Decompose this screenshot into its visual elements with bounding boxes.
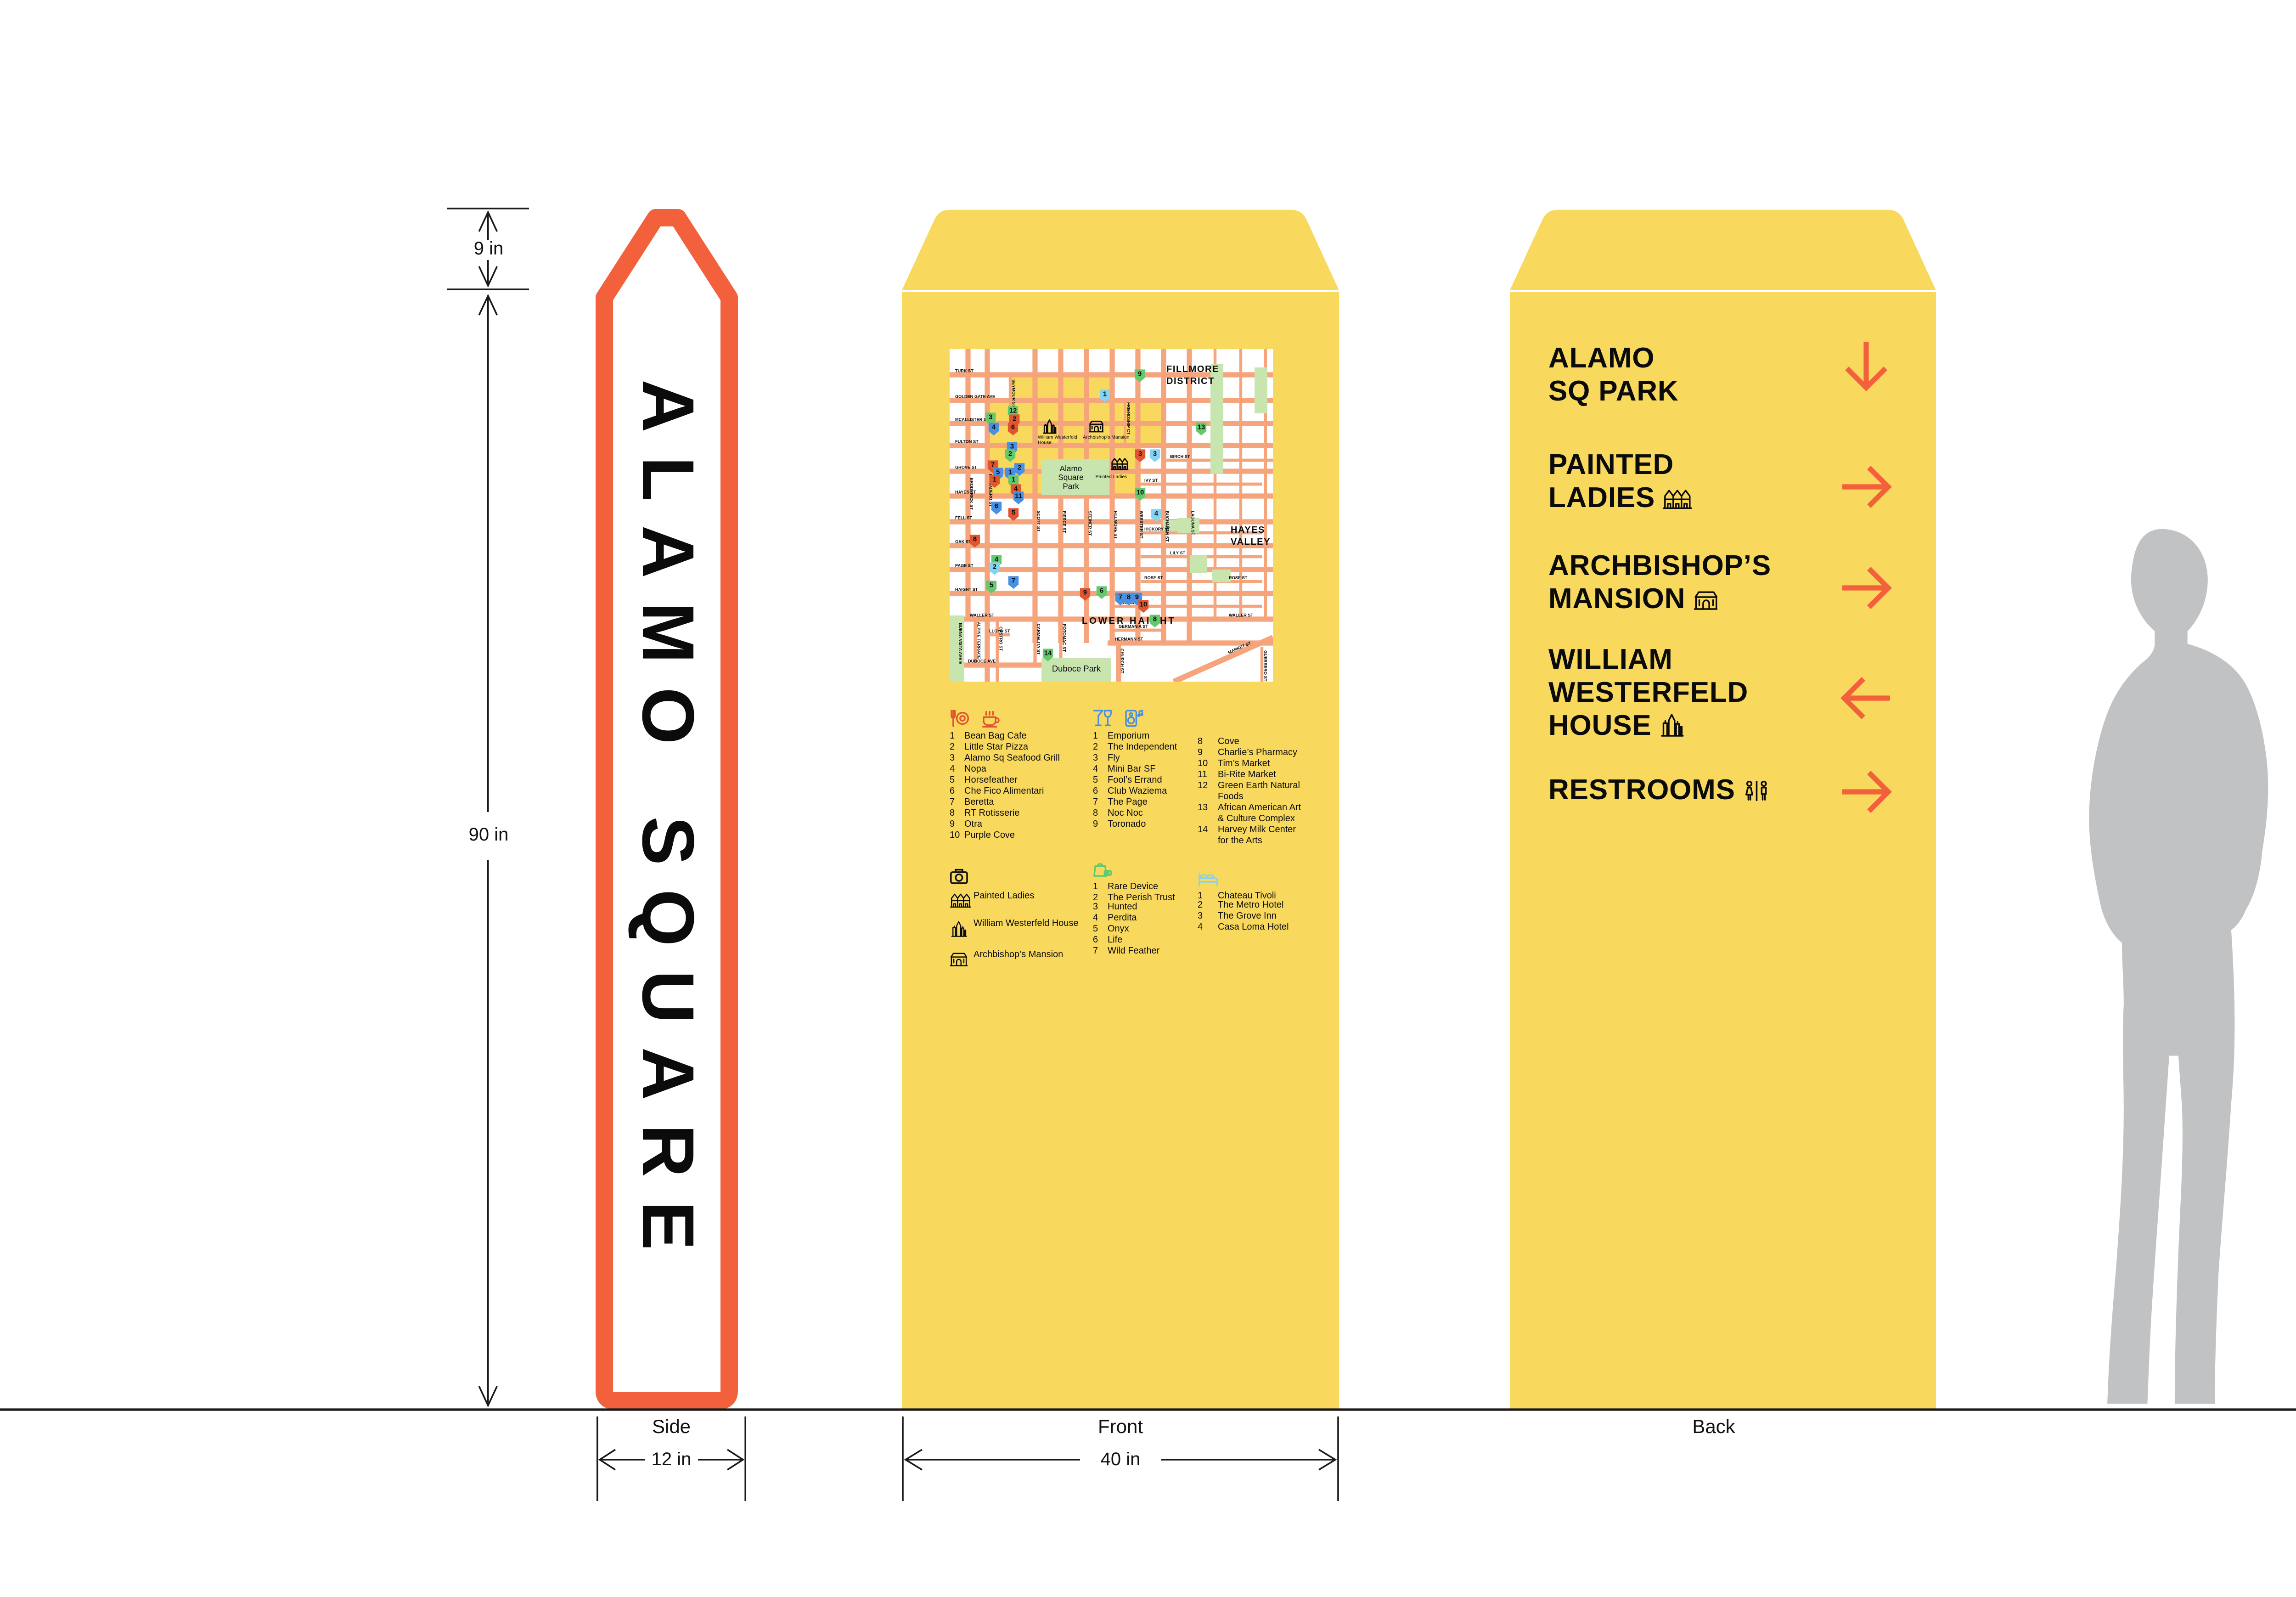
arrow-down-icon	[1837, 339, 1896, 394]
view-label-back: Back	[1692, 1416, 1735, 1439]
svg-text:ROSE ST: ROSE ST	[1144, 576, 1163, 581]
dim-40in: 40 in	[1095, 1450, 1146, 1470]
svg-text:SCOTT ST: SCOTT ST	[1036, 511, 1041, 532]
front-map: AlamoSquareParkDuboce ParkTURK STGOLDEN …	[950, 350, 1273, 682]
svg-text:8: 8	[973, 536, 977, 543]
svg-text:LILY ST: LILY ST	[1170, 551, 1186, 556]
svg-text:CARMELITA ST: CARMELITA ST	[1036, 624, 1041, 655]
back-panel-body: ALAMOSQ PARK PAINTEDLADIES ARCHBISHOP’SM…	[1510, 293, 1936, 1410]
svg-text:5: 5	[1012, 509, 1015, 517]
svg-text:FILLMORE: FILLMORE	[1166, 365, 1219, 375]
svg-text:FILLMORE ST: FILLMORE ST	[1113, 511, 1118, 540]
view-label-front: Front	[1098, 1416, 1143, 1439]
legend-sight: Painted Ladies	[950, 893, 1104, 913]
restaurant-icon	[950, 710, 971, 728]
legend-item: 10Purple Cove	[950, 832, 1104, 843]
svg-text:8: 8	[1153, 616, 1157, 623]
legend-item: 14Harvey Milk Center for the Arts	[1198, 826, 1302, 848]
svg-text:PIERCE ST: PIERCE ST	[1062, 511, 1066, 534]
svg-text:2: 2	[1018, 464, 1021, 472]
svg-text:Archbishop’s Mansion: Archbishop’s Mansion	[1083, 435, 1130, 440]
restrooms-icon	[1743, 781, 1770, 801]
svg-text:FRIENDSHIP CT: FRIENDSHIP CT	[1126, 403, 1131, 435]
svg-text:5: 5	[996, 469, 1000, 476]
westerfeld-icon	[950, 921, 968, 938]
svg-text:9: 9	[1083, 589, 1087, 597]
legend-sight: Archbishop’s Mansion	[950, 951, 1104, 971]
svg-text:POTOMAC ST: POTOMAC ST	[1062, 624, 1066, 652]
svg-text:Duboce Park: Duboce Park	[1052, 664, 1101, 674]
cocktail-icon	[1093, 710, 1113, 728]
svg-text:11: 11	[1015, 493, 1022, 500]
legend-category-icons	[1198, 866, 1302, 886]
legend-item: 12Green Earth Natural Foods	[1198, 783, 1302, 804]
svg-text:10: 10	[1137, 489, 1144, 497]
svg-text:6: 6	[1100, 587, 1103, 595]
svg-text:WALLER ST: WALLER ST	[970, 613, 994, 618]
back-directory-entry: PAINTEDLADIES	[1548, 451, 1693, 517]
arrow-right-icon	[1839, 559, 1894, 618]
person-silhouette	[2048, 525, 2290, 1415]
svg-text:House: House	[1038, 440, 1052, 446]
camera-icon	[950, 866, 969, 885]
svg-text:IVY ST: IVY ST	[1144, 479, 1158, 483]
svg-text:LOWER HAIGHT: LOWER HAIGHT	[1082, 616, 1176, 626]
svg-text:OAK ST: OAK ST	[955, 540, 971, 544]
mansion-icon	[1693, 590, 1718, 610]
svg-text:STEINER ST: STEINER ST	[1087, 511, 1092, 536]
svg-text:2: 2	[993, 564, 996, 571]
svg-text:BIRCH ST: BIRCH ST	[1170, 455, 1190, 459]
legend-column-3: 8Cove9Charlie’s Pharmacy10Tim’s Market11…	[1198, 708, 1302, 936]
legend-category-icons	[950, 708, 1104, 728]
svg-text:7: 7	[1012, 577, 1015, 585]
legend-item: 7Wild Feather	[1093, 948, 1196, 959]
svg-text:MCALLISTER ST: MCALLISTER ST	[955, 418, 989, 422]
legend-column-1: 1Bean Bag Cafe2Little Star Pizza3Alamo S…	[950, 708, 1104, 971]
back-directory-entry: ALAMOSQ PARK	[1548, 344, 1679, 410]
svg-text:4: 4	[992, 424, 996, 431]
svg-text:DUBOCE AVE: DUBOCE AVE	[968, 659, 996, 664]
arrow-left-icon	[1839, 669, 1894, 728]
back-directory-entry: RESTROOMS	[1548, 776, 1770, 809]
svg-text:DISTRICT: DISTRICT	[1166, 377, 1215, 387]
legend-sight: William Westerfeld House	[950, 921, 1104, 943]
svg-text:1: 1	[1008, 469, 1012, 476]
svg-text:13: 13	[1198, 424, 1205, 431]
legend-item: 13African American Art & Culture Complex	[1198, 805, 1302, 826]
bed-icon	[1198, 868, 1219, 886]
legend-item: 9Toronado	[1093, 821, 1196, 832]
legend-item: 1Rare Device	[1093, 883, 1196, 894]
svg-text:4: 4	[1014, 485, 1018, 493]
svg-text:WALLER ST: WALLER ST	[1229, 613, 1253, 618]
signage-spec-sheet: ALAMO SQUARE AlamoSquareParkDuboce ParkT…	[0, 0, 2296, 1597]
back-directory-entry: WILLIAMWESTERFELDHOUSE	[1548, 645, 1748, 745]
svg-text:4: 4	[1154, 510, 1159, 518]
svg-text:VALLEY: VALLEY	[1231, 537, 1271, 547]
svg-text:7: 7	[991, 462, 995, 469]
svg-text:HAYES: HAYES	[1231, 525, 1265, 536]
svg-text:FULTON ST: FULTON ST	[955, 440, 979, 444]
svg-text:WEBSTER ST: WEBSTER ST	[1139, 511, 1143, 539]
arrow-right-icon	[1839, 458, 1894, 517]
svg-text:5: 5	[990, 582, 993, 589]
svg-text:1: 1	[1103, 391, 1107, 398]
svg-text:ROSE ST: ROSE ST	[1229, 576, 1248, 581]
svg-text:LAGUNA ST: LAGUNA ST	[1190, 511, 1195, 536]
svg-text:9: 9	[1135, 594, 1139, 601]
svg-text:1: 1	[1012, 476, 1015, 484]
svg-text:HERMANN ST: HERMANN ST	[1115, 637, 1143, 642]
painted-icon	[1662, 489, 1693, 509]
svg-text:4: 4	[995, 556, 999, 564]
svg-text:3: 3	[1153, 451, 1157, 458]
svg-text:6: 6	[1011, 424, 1015, 431]
svg-text:3: 3	[989, 414, 992, 421]
back-panel-cap	[1510, 208, 1936, 290]
svg-text:8: 8	[1127, 594, 1131, 601]
svg-text:Alamo: Alamo	[1060, 464, 1082, 474]
speaker-icon	[1122, 710, 1144, 728]
svg-text:7: 7	[1119, 594, 1122, 601]
svg-text:1: 1	[993, 476, 996, 484]
westerfeld-icon	[1659, 713, 1687, 737]
svg-text:PAGE ST: PAGE ST	[955, 564, 974, 568]
svg-text:ALPINE TERRACE: ALPINE TERRACE	[976, 622, 981, 660]
svg-text:3: 3	[1010, 443, 1014, 451]
svg-text:BUCHANAN ST: BUCHANAN ST	[1165, 511, 1169, 542]
dim-90in: 90 in	[465, 826, 512, 846]
svg-text:12: 12	[1009, 407, 1017, 415]
painted-icon	[950, 893, 972, 908]
dim-9in: 9 in	[470, 240, 507, 260]
svg-text:Painted Ladies: Painted Ladies	[1096, 475, 1127, 480]
svg-text:GOLDEN GATE AVE: GOLDEN GATE AVE	[955, 395, 995, 399]
legend-item: 4Casa Loma Hotel	[1198, 925, 1302, 936]
svg-text:GUERRERO ST: GUERRERO ST	[1263, 651, 1267, 682]
mansion-icon	[950, 951, 968, 966]
svg-text:Park: Park	[1063, 482, 1079, 491]
back-directory-entry: ARCHBISHOP’SMANSION	[1548, 552, 1771, 618]
arrow-right-icon	[1839, 763, 1894, 822]
legend-category-icons	[1093, 708, 1196, 728]
svg-text:3: 3	[1138, 451, 1142, 458]
legend-category-icons	[950, 864, 1104, 885]
front-panel-cap	[902, 208, 1339, 290]
svg-text:GROVE ST: GROVE ST	[955, 465, 977, 470]
svg-text:2: 2	[1008, 451, 1012, 458]
svg-text:BUENA VISTA AVE E: BUENA VISTA AVE E	[958, 623, 962, 665]
svg-text:CASTRO ST: CASTRO ST	[998, 627, 1003, 651]
legend-category-icons	[1093, 858, 1196, 878]
svg-text:9: 9	[1138, 371, 1142, 378]
svg-text:Square: Square	[1058, 473, 1083, 482]
legend-column-2: 1Emporium2The Independent3Fly4Mini Bar S…	[1093, 708, 1196, 959]
svg-text:HAIGHT ST: HAIGHT ST	[955, 587, 978, 592]
svg-text:2: 2	[1013, 416, 1016, 423]
svg-text:FELL ST: FELL ST	[955, 516, 972, 520]
svg-text:William Westerfeld: William Westerfeld	[1038, 435, 1077, 440]
dim-12in: 12 in	[646, 1450, 697, 1470]
svg-text:TURK ST: TURK ST	[955, 369, 974, 373]
svg-text:14: 14	[1044, 650, 1052, 657]
bag-icon	[1093, 859, 1112, 878]
svg-text:6: 6	[995, 503, 998, 510]
svg-text:10: 10	[1140, 601, 1147, 609]
side-sign-text: ALAMO SQUARE	[625, 279, 709, 1374]
svg-text:CHURCH ST: CHURCH ST	[1120, 649, 1124, 674]
front-panel-body: AlamoSquareParkDuboce ParkTURK STGOLDEN …	[902, 293, 1339, 1410]
svg-text:SEYMOUR ST: SEYMOUR ST	[1011, 380, 1016, 408]
svg-text:BRODERICK ST: BRODERICK ST	[969, 478, 974, 510]
view-label-side: Side	[652, 1416, 691, 1439]
coffee-icon	[980, 710, 1001, 728]
